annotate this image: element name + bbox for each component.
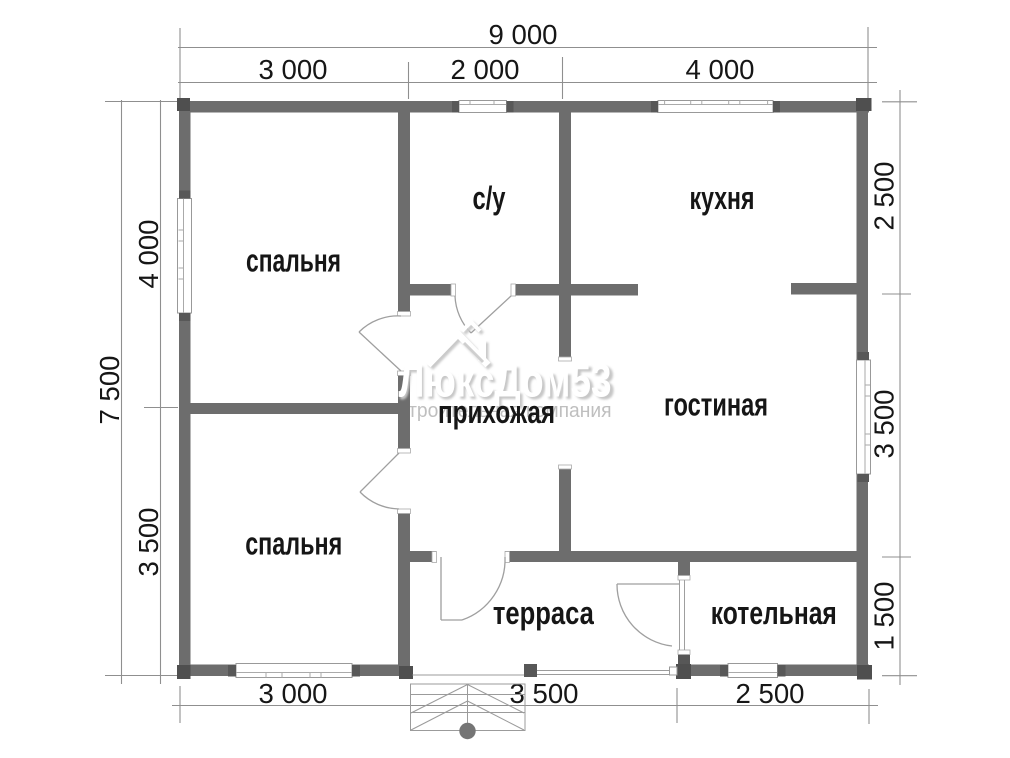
svg-text:3 500: 3 500 xyxy=(869,389,900,458)
svg-text:прихожая: прихожая xyxy=(438,394,555,430)
svg-text:4 000: 4 000 xyxy=(133,219,164,288)
svg-text:4 000: 4 000 xyxy=(685,54,754,85)
svg-text:2 500: 2 500 xyxy=(735,678,804,709)
svg-text:9 000: 9 000 xyxy=(488,19,557,50)
svg-text:3 000: 3 000 xyxy=(258,678,327,709)
svg-text:спальня: спальня xyxy=(246,243,341,279)
svg-text:кухня: кухня xyxy=(690,180,755,216)
svg-text:2 000: 2 000 xyxy=(450,54,519,85)
svg-text:терраса: терраса xyxy=(493,595,594,631)
svg-text:с/у: с/у xyxy=(473,180,506,216)
svg-text:гостиная: гостиная xyxy=(664,387,768,423)
svg-text:3 500: 3 500 xyxy=(133,507,164,576)
svg-text:спальня: спальня xyxy=(245,526,342,562)
svg-text:3 500: 3 500 xyxy=(509,678,578,709)
svg-text:7 500: 7 500 xyxy=(94,355,125,424)
svg-text:котельная: котельная xyxy=(711,595,837,631)
svg-text:2 500: 2 500 xyxy=(869,161,900,230)
svg-text:3 000: 3 000 xyxy=(258,54,327,85)
svg-text:1 500: 1 500 xyxy=(869,581,900,650)
